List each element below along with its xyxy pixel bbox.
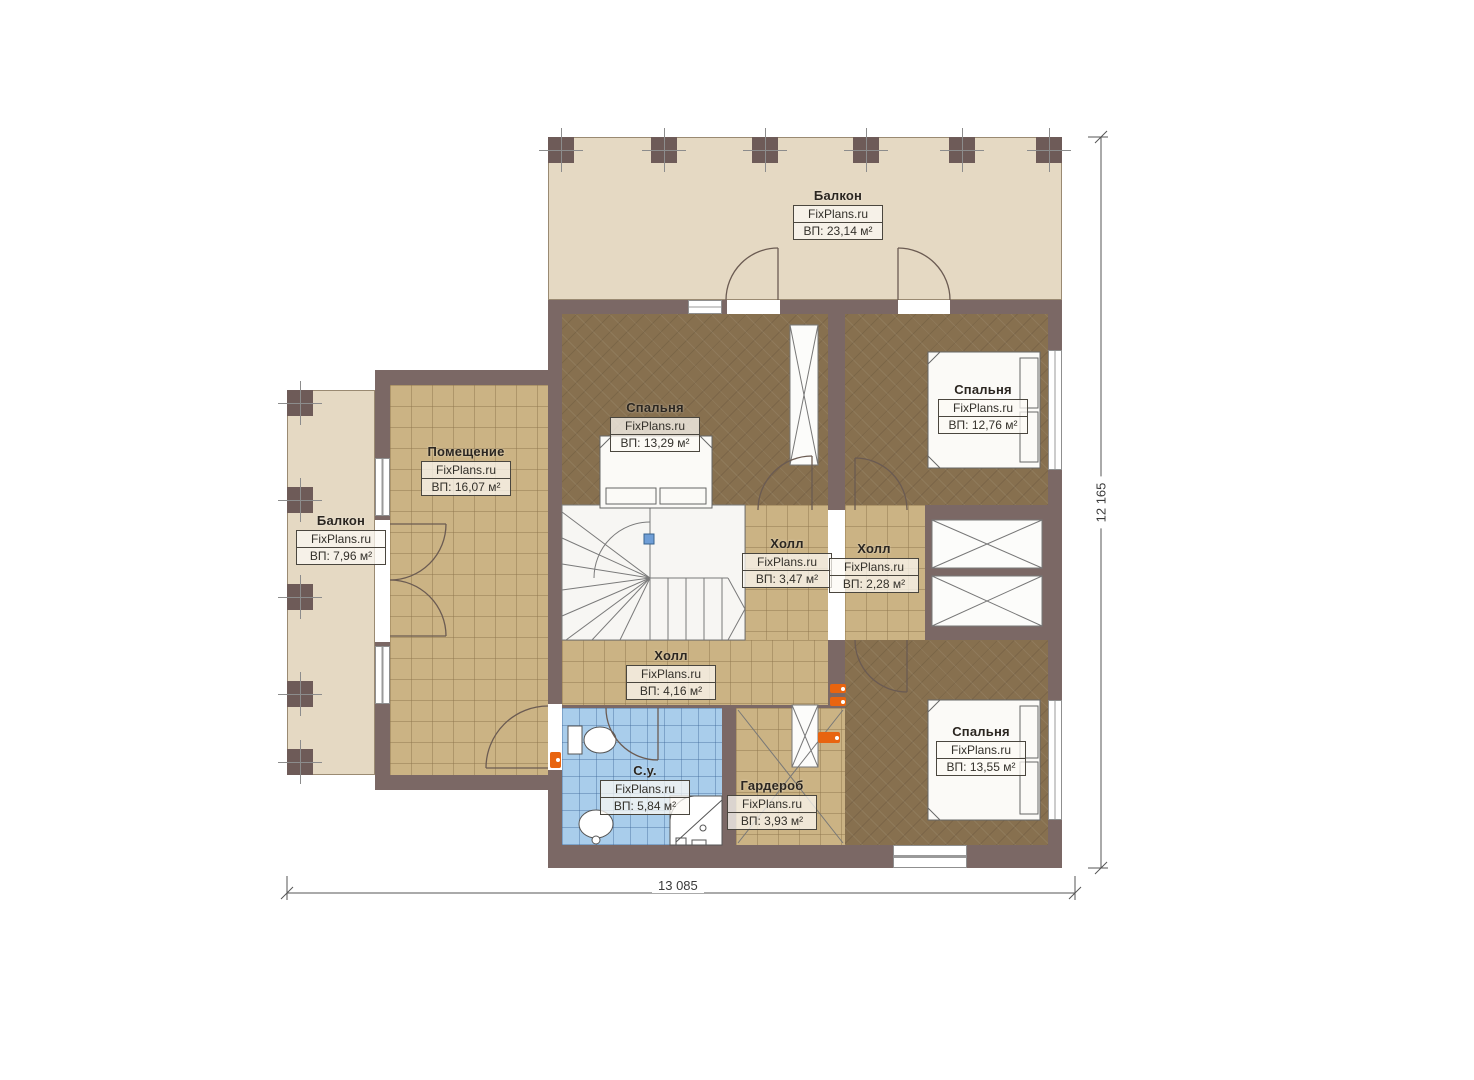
room-info-box: FixPlans.ru ВП: 13,29 м² (610, 417, 700, 452)
watermark: FixPlans.ru (830, 559, 918, 576)
room-area: ВП: 12,76 м² (939, 417, 1027, 433)
room-label-hall-1: Холл FixPlans.ru ВП: 3,47 м² (742, 536, 832, 588)
room-name: Спальня (936, 724, 1026, 739)
room-label-wardrobe: Гардероб FixPlans.ru ВП: 3,93 м² (727, 778, 817, 830)
column (287, 487, 313, 513)
socket-marker (830, 697, 846, 706)
watermark: FixPlans.ru (937, 742, 1025, 759)
socket-marker (830, 684, 846, 693)
column (949, 137, 975, 163)
window (1048, 350, 1062, 470)
room-area: ВП: 13,55 м² (937, 759, 1025, 775)
room-name: Холл (626, 648, 716, 663)
watermark: FixPlans.ru (422, 462, 510, 479)
dimension-bottom: 13 085 (652, 878, 704, 893)
watermark: FixPlans.ru (601, 781, 689, 798)
socket-marker (550, 752, 561, 768)
room-name: Балкон (793, 188, 883, 203)
floor-plan: Балкон FixPlans.ru ВП: 23,14 м² Балкон F… (0, 0, 1474, 1080)
room-label-balcony-left: Балкон FixPlans.ru ВП: 7,96 м² (296, 513, 386, 565)
room-info-box: FixPlans.ru ВП: 5,84 м² (600, 780, 690, 815)
room-area: ВП: 13,29 м² (611, 435, 699, 451)
watermark: FixPlans.ru (939, 400, 1027, 417)
room-info-box: FixPlans.ru ВП: 3,47 м² (742, 553, 832, 588)
room-name: Холл (742, 536, 832, 551)
watermark: FixPlans.ru (611, 418, 699, 435)
room-info-box: FixPlans.ru ВП: 23,14 м² (793, 205, 883, 240)
room-info-box: FixPlans.ru ВП: 13,55 м² (936, 741, 1026, 776)
room-area: ВП: 23,14 м² (794, 223, 882, 239)
window (893, 845, 967, 868)
dimension-right: 12 165 (1093, 477, 1108, 529)
column (1036, 137, 1062, 163)
room-name: Спальня (610, 400, 700, 415)
room-area: ВП: 5,84 м² (601, 798, 689, 814)
window (375, 646, 390, 704)
room-label-balcony-top: Балкон FixPlans.ru ВП: 23,14 м² (793, 188, 883, 240)
room-info-box: FixPlans.ru ВП: 7,96 м² (296, 530, 386, 565)
column (548, 137, 574, 163)
window (375, 458, 390, 516)
room-area: ВП: 16,07 м² (422, 479, 510, 495)
room-info-box: FixPlans.ru ВП: 4,16 м² (626, 665, 716, 700)
room-label-bedroom-2: Спальня FixPlans.ru ВП: 12,76 м² (938, 382, 1028, 434)
room-area: ВП: 7,96 м² (297, 548, 385, 564)
room-label-bathroom: С.у. FixPlans.ru ВП: 5,84 м² (600, 763, 690, 815)
room-label-bedroom-1: Спальня FixPlans.ru ВП: 13,29 м² (610, 400, 700, 452)
column (287, 390, 313, 416)
watermark: FixPlans.ru (743, 554, 831, 571)
socket-marker (818, 732, 840, 743)
room-label-hall-2: Холл FixPlans.ru ВП: 2,28 м² (829, 541, 919, 593)
column (752, 137, 778, 163)
watermark: FixPlans.ru (297, 531, 385, 548)
door-opening (727, 300, 780, 314)
room-name: Спальня (938, 382, 1028, 397)
room-info-box: FixPlans.ru ВП: 2,28 м² (829, 558, 919, 593)
window (1048, 700, 1062, 820)
room-area: ВП: 3,93 м² (728, 813, 816, 829)
room-area: ВП: 4,16 м² (627, 683, 715, 699)
column (287, 681, 313, 707)
watermark: FixPlans.ru (627, 666, 715, 683)
watermark: FixPlans.ru (728, 796, 816, 813)
room-name: С.у. (600, 763, 690, 778)
column (651, 137, 677, 163)
room-info-box: FixPlans.ru ВП: 12,76 м² (938, 399, 1028, 434)
room-name: Балкон (296, 513, 386, 528)
room-area: ВП: 3,47 м² (743, 571, 831, 587)
column (287, 584, 313, 610)
watermark: FixPlans.ru (794, 206, 882, 223)
room-info-box: FixPlans.ru ВП: 16,07 м² (421, 461, 511, 496)
column (287, 749, 313, 775)
room-label-pomeschenie: Помещение FixPlans.ru ВП: 16,07 м² (421, 444, 511, 496)
room-name: Гардероб (727, 778, 817, 793)
room-area: ВП: 2,28 м² (830, 576, 918, 592)
staircase-area (562, 505, 745, 640)
window (688, 300, 722, 314)
room-name: Помещение (421, 444, 511, 459)
column (853, 137, 879, 163)
room-info-box: FixPlans.ru ВП: 3,93 м² (727, 795, 817, 830)
room-name: Холл (829, 541, 919, 556)
door-opening (898, 300, 950, 314)
room-label-bedroom-3: Спальня FixPlans.ru ВП: 13,55 м² (936, 724, 1026, 776)
room-label-hall-3: Холл FixPlans.ru ВП: 4,16 м² (626, 648, 716, 700)
